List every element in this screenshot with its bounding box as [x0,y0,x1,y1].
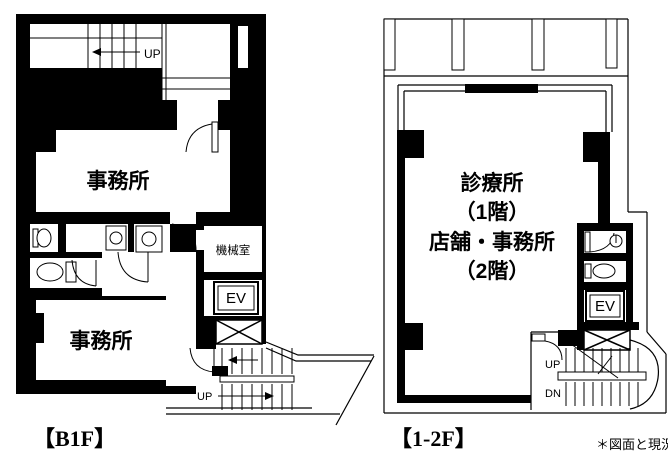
f12-elevator: EV [586,291,624,321]
b1f-office-lower-label: 事務所 [70,329,133,353]
b1f-bottom-stairs-arrowhead-right [265,392,274,400]
floorplan-canvas: UP 機械室 EV [0,0,668,462]
b1f-machine-room-label: 機械室 [216,243,251,257]
f12-room-label: 診療所 （1階） 店舗・事務所 （2階） [429,171,555,283]
f12-stairs-up-label: UP [545,359,560,371]
f12-room-line-2: （1階） [455,200,530,224]
b1f-shaft [216,320,262,344]
sink-2-bowl-icon [142,232,156,246]
f12-terrace-columns [384,19,617,70]
f12-stairs-dn-label: DN [545,388,561,400]
b1f-elevator-label: EV [226,290,246,307]
f12-floor-label: 【1-2F】 [390,426,477,451]
f12-room-line-1: 診療所 [461,171,524,195]
sink-1-bowl-icon [110,232,122,244]
f12-toilet-door-leaf [585,232,590,252]
f12-plan: EV [384,19,666,451]
f12-toilet-tank [585,264,591,278]
f12-toilet-bowl-icon [593,264,615,278]
f12-room-line-4: （2階） [455,259,530,283]
toilet-bowl-icon [37,263,63,281]
b1f-office-upper-label: 事務所 [87,169,150,193]
b1f-plan: UP 機械室 EV [16,14,374,451]
b1f-elevator: EV [214,282,258,314]
b1f-top-stairs-up-label: UP [144,47,161,61]
b1f-floor-label: 【B1F】 [33,426,116,451]
f12-elevator-label: EV [595,298,615,315]
f12-room-line-3: 店舗・事務所 [429,230,555,254]
footnote: ＊図面と現況 [596,437,668,452]
b1f-bottom-stairs-up-label: UP [197,391,212,403]
f12-shaft [584,330,630,350]
urinal-icon [37,229,51,247]
floorplan-drawing: UP 機械室 EV [0,0,668,462]
